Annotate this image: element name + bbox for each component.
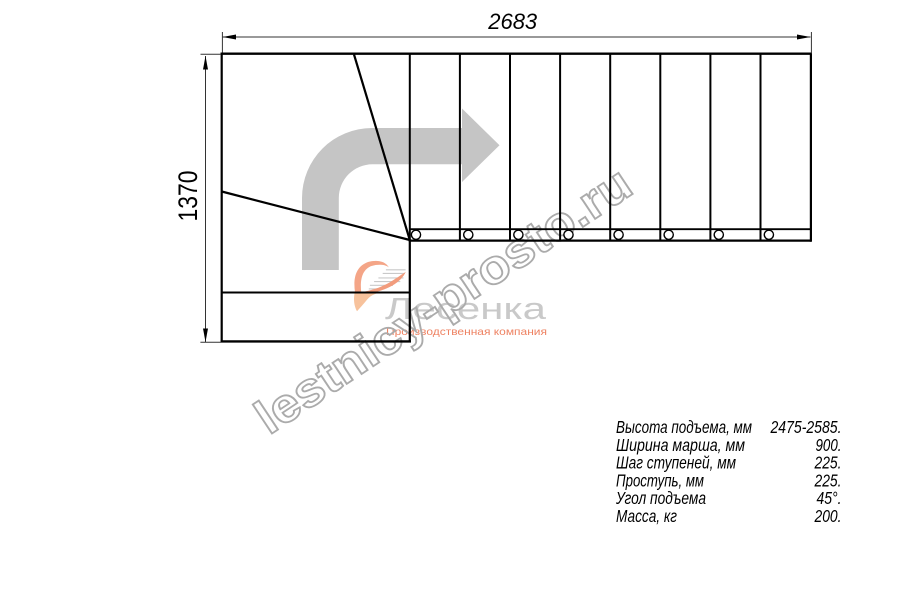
svg-text:200.: 200.: [814, 506, 842, 526]
svg-text:1370: 1370: [173, 171, 203, 222]
svg-text:2683: 2683: [487, 9, 538, 34]
svg-text:Масса, кг: Масса, кг: [616, 506, 677, 526]
